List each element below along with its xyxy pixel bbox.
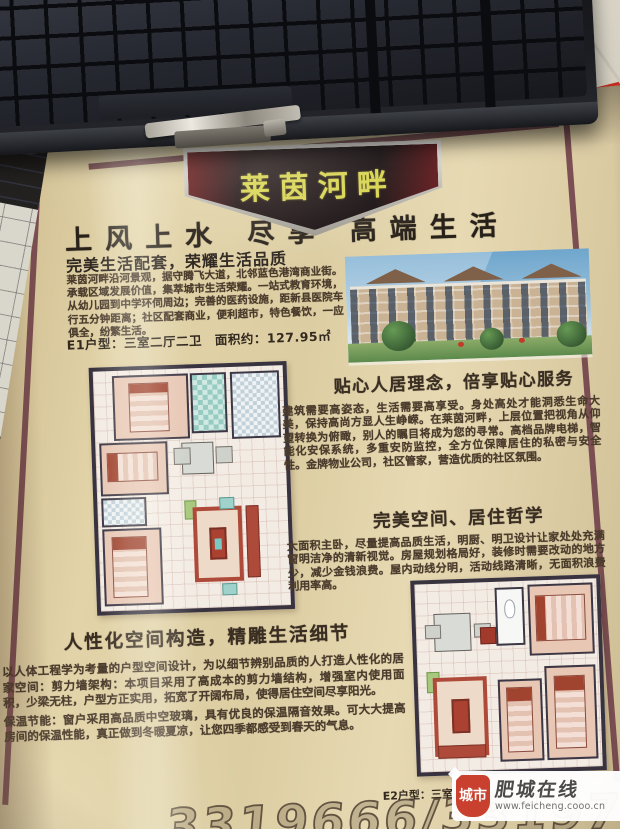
site-watermark: 城市 肥城在线 www.feicheng.cooo.cn [452, 771, 620, 821]
sofa [246, 505, 262, 577]
clip-knob [263, 118, 287, 137]
bed [106, 451, 158, 482]
chair [173, 448, 191, 465]
cabinet [480, 627, 497, 644]
roof-gable [521, 263, 581, 279]
roof-gable [365, 268, 425, 284]
bathroom [495, 586, 526, 645]
bedroom [99, 441, 169, 496]
kitchen [190, 372, 228, 433]
flower-bed [458, 342, 464, 347]
table-decor [215, 538, 222, 549]
tv-stand [222, 583, 238, 596]
bed [506, 687, 534, 752]
bedroom [498, 678, 545, 762]
roof-gable [443, 265, 503, 281]
e2-floor-plan [410, 574, 607, 777]
bed [112, 536, 148, 598]
section-1-body: 建筑需要高姿态，生活需要高享受。身处高处才能洞悉生命大美，保持高尚方显人生峥嵘。… [282, 394, 602, 472]
chair [425, 625, 442, 639]
e1-floor-plan [89, 361, 296, 616]
city-seal-icon: 城市 [456, 775, 490, 817]
coffee-table [451, 699, 471, 734]
desk-photo-scene: 莱茵河畔 上风上水 尽享 高端生活 完美生活配套，荣耀生活品质 莱茵河畔沿河景观… [0, 0, 620, 829]
bed [535, 594, 587, 642]
bedroom [112, 373, 190, 440]
bed [554, 674, 588, 749]
bed [129, 382, 170, 432]
toilet [504, 600, 516, 619]
chair [215, 446, 233, 463]
tv-stand [219, 496, 235, 509]
section-3-body: 以人体工程学为考量的户型空间设计，为以细节辨别品质的人打造人性化的居家空间：剪力… [2, 651, 407, 749]
flower-bed [519, 338, 525, 343]
real-estate-flyer: 莱茵河畔 上风上水 尽享 高端生活 完美生活配套，荣耀生活品质 莱茵河畔沿河景观… [0, 72, 620, 829]
section-1-heading: 贴心人居理念，倍享贴心服务 [296, 363, 612, 399]
bathroom [101, 497, 148, 527]
living-room-rug [193, 506, 245, 582]
project-name: 莱茵河畔 [230, 159, 396, 209]
bedroom [545, 665, 599, 761]
watermark-site-name: 肥城在线 [494, 780, 607, 801]
bedroom [527, 582, 595, 656]
watermark-text: 肥城在线 www.feicheng.cooo.cn [495, 780, 605, 812]
section-3-heading: 人性化空间构造，精雕生活细节 [27, 618, 388, 657]
sofa [438, 744, 486, 759]
bedroom [102, 528, 164, 607]
building-rendering [345, 248, 593, 362]
watermark-site-url: www.feicheng.cooo.cn [495, 801, 605, 812]
bathroom [230, 370, 282, 439]
